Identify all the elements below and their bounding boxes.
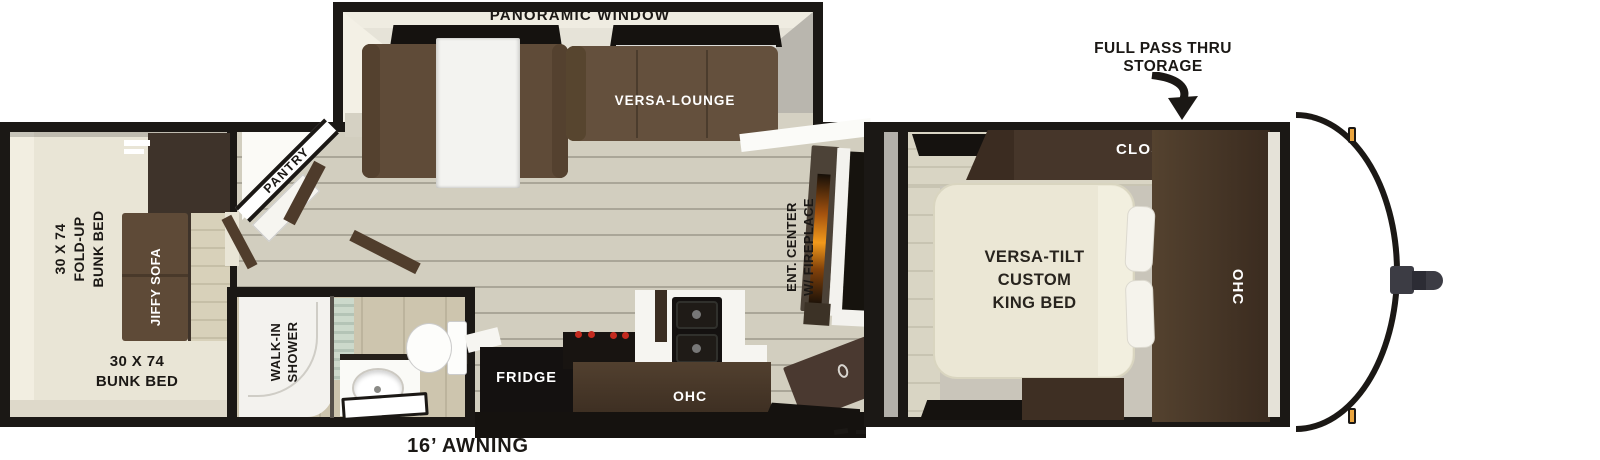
pillow-top [1124,205,1155,272]
walk-in-shower-label: WALK-IN SHOWER [267,297,301,407]
kitchen-sink-drain-1 [692,310,701,319]
bunk-platform [188,213,230,341]
bedroom-ohc-label: OHC [1228,252,1246,322]
sofa-bed-blanket [436,38,520,188]
window-right [610,25,782,47]
hitch-coupler-icon [1426,271,1443,290]
bunk-room-bottom-wall [10,400,227,417]
bedroom-inner-wall-strip [1268,132,1280,417]
panoramic-window-label: PANORAMIC WINDOW [400,7,760,25]
marker-light-bottom [1348,408,1356,424]
fold-up-bunk-label: 30 X 74 FOLD-UP BUNK BED [50,194,108,304]
bedroom-wall-inner [898,132,908,417]
sofa-bed-arm-left [362,44,380,178]
floorplan-canvas: PANORAMIC WINDOW 30 X 74 FOLD-UP BUNK BE… [0,0,1600,460]
stove-burner-2 [588,331,595,338]
storage-arrow-icon [1138,72,1210,122]
bunk-room-left-wall [10,132,34,417]
bunk-shelf-slat-2 [124,149,144,154]
bunk-headboard-cabinet [148,133,230,217]
bunk-shelf-slat-1 [124,140,150,146]
bed-bench [1022,378,1124,420]
awning-tick-2 [856,430,866,434]
marker-light-top [1348,127,1356,143]
pillow-bottom [1125,280,1155,349]
front-cap [1296,112,1400,432]
versa-lounge-arm-left [566,46,586,141]
awning-rail [475,412,866,438]
stove-burner-4 [622,332,629,339]
stove-burner-1 [575,331,582,338]
jiffy-sofa-label: JIFFY SOFA [148,237,164,337]
versa-lounge-label: VERSA-LOUNGE [590,93,760,109]
counter-dark-edge [655,290,667,342]
bedroom-ohc-cabinet [1152,130,1270,422]
sink-drain [374,386,381,393]
bunk-bed-label: 30 X 74 BUNK BED [62,352,212,392]
kitchen-sink-drain-2 [692,344,701,353]
toilet-bowl [406,323,452,373]
hitch-plate-icon [1390,266,1414,294]
stove-burner-3 [610,332,617,339]
awning-label: 16’ AWNING [368,436,568,458]
ent-center-label: ENT. CENTER W/ FIREPLACE [782,162,818,332]
bedroom-wall [864,122,884,427]
pass-thru-storage-label: FULL PASS THRU STORAGE [1053,40,1273,76]
king-bed-label: VERSA-TILT CUSTOM KING BED [952,244,1117,316]
